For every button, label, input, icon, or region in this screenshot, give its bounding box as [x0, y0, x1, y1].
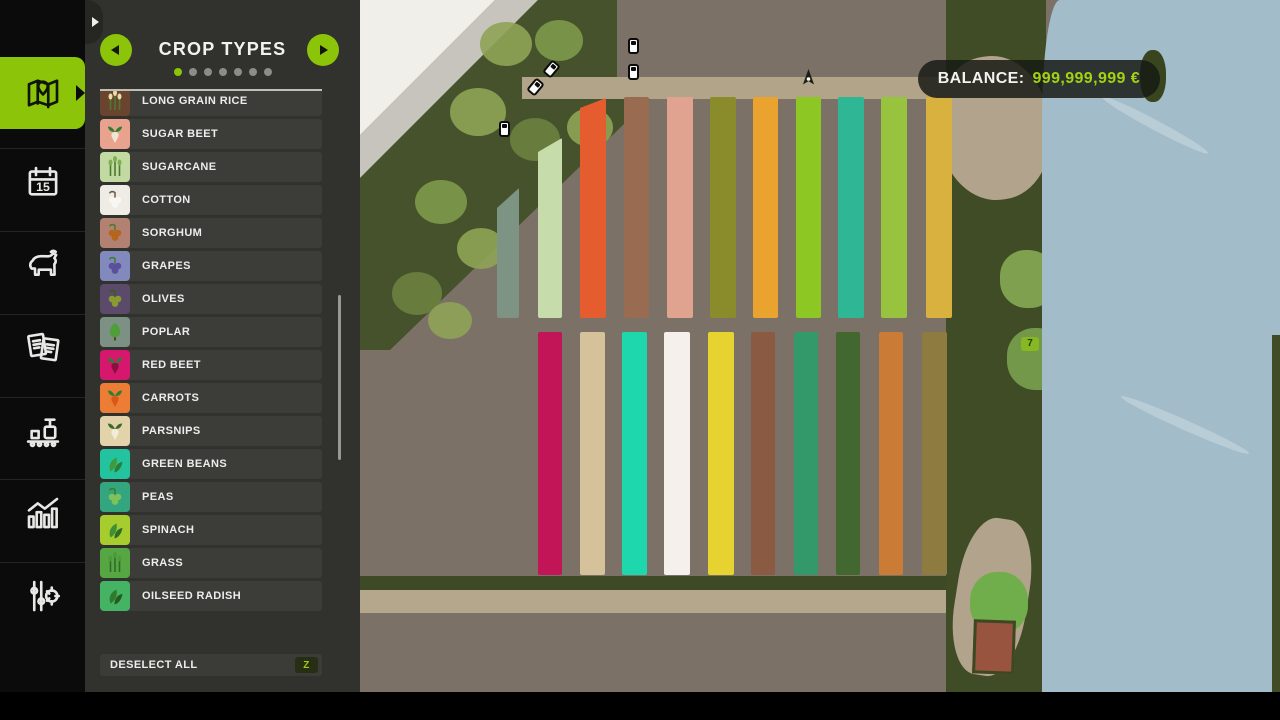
crop-item-label: OILSEED RADISH: [142, 590, 241, 602]
field-strip-top-6[interactable]: [710, 97, 736, 318]
crop-item-label: OLIVES: [142, 293, 185, 305]
deselect-all-label: DESELECT ALL: [110, 659, 295, 671]
crop-item-long-grain-rice[interactable]: LONG GRAIN RICE: [100, 91, 322, 116]
crop-item-label: PARSNIPS: [142, 425, 201, 437]
crop-item-oilseed-radish[interactable]: OILSEED RADISH: [100, 581, 322, 611]
panel-title: CROP TYPES: [85, 39, 360, 60]
crop-item-label: GRAPES: [142, 260, 191, 272]
map-building-roof: [972, 619, 1016, 674]
crop-item-label: POPLAR: [142, 326, 190, 338]
crop-item-label: RED BEET: [142, 359, 201, 371]
crop-item-label: SORGHUM: [142, 227, 202, 239]
crop-item-sorghum[interactable]: SORGHUM: [100, 218, 322, 248]
deselect-all-button[interactable]: DESELECT ALL Z: [100, 654, 322, 676]
grass-icon: [100, 548, 130, 578]
crop-item-grass[interactable]: GRASS: [100, 548, 322, 578]
crop-item-label: GREEN BEANS: [142, 458, 227, 470]
field-strip-top-1[interactable]: [497, 188, 519, 318]
tree-cluster: [535, 20, 583, 61]
long-grain-rice-icon: [100, 91, 130, 116]
panel-collapse-handle[interactable]: [85, 0, 103, 44]
crop-types-panel: CROP TYPES LONG GRAIN RICESUGAR BEETSUGA…: [85, 0, 360, 692]
crop-item-poplar[interactable]: POPLAR: [100, 317, 322, 347]
crop-item-label: COTTON: [142, 194, 191, 206]
peas-icon: [100, 482, 130, 512]
sidebar-item-statistics[interactable]: [0, 479, 85, 545]
crop-list: LONG GRAIN RICESUGAR BEETSUGARCANECOTTON…: [100, 91, 325, 639]
field-strip-top-11[interactable]: [926, 97, 952, 318]
page-dot-3: [204, 68, 212, 76]
crop-item-green-beans[interactable]: GREEN BEANS: [100, 449, 322, 479]
field-strip-bottom-1[interactable]: [538, 332, 562, 575]
production-icon: [22, 410, 64, 452]
field-strip-top-8[interactable]: [796, 97, 821, 318]
crop-item-carrots[interactable]: CARROTS: [100, 383, 322, 413]
crop-item-red-beet[interactable]: RED BEET: [100, 350, 322, 380]
active-item-pointer-icon: [76, 85, 85, 101]
olives-icon: [100, 284, 130, 314]
sidebar-item-calendar[interactable]: 15: [0, 148, 85, 214]
green-beans-icon: [100, 449, 130, 479]
tree-cluster: [428, 302, 472, 339]
field-strip-bottom-4[interactable]: [664, 332, 690, 575]
map-road-top: [522, 77, 954, 99]
crop-item-label: LONG GRAIN RICE: [142, 95, 248, 107]
key-hint-z: Z: [295, 657, 318, 673]
crop-item-label: SUGAR BEET: [142, 128, 218, 140]
field-strip-bottom-9[interactable]: [879, 332, 903, 575]
sidebar: 15: [0, 0, 85, 692]
map-icon: [22, 72, 64, 114]
sorghum-icon: [100, 218, 130, 248]
field-strip-top-4[interactable]: [624, 97, 649, 318]
field-strip-bottom-2[interactable]: [580, 332, 605, 575]
page-dot-7: [264, 68, 272, 76]
sidebar-item-settings[interactable]: [0, 562, 85, 628]
crop-item-peas[interactable]: PEAS: [100, 482, 322, 512]
field-strip-bottom-6[interactable]: [751, 332, 775, 575]
crop-item-parsnips[interactable]: PARSNIPS: [100, 416, 322, 446]
cow-icon: [22, 244, 64, 286]
field-strip-top-7[interactable]: [753, 97, 778, 318]
sidebar-item-map[interactable]: [0, 57, 85, 129]
statistics-icon: [22, 492, 64, 534]
scrollbar-thumb[interactable]: [338, 295, 341, 460]
parsnips-icon: [100, 416, 130, 446]
sidebar-item-animals[interactable]: [0, 231, 85, 297]
field-strip-bottom-3[interactable]: [622, 332, 647, 575]
spinach-icon: [100, 515, 130, 545]
tree-cluster: [480, 22, 532, 66]
field-strip-bottom-7[interactable]: [794, 332, 818, 575]
map-road-bottom: [360, 590, 1040, 613]
red-beet-icon: [100, 350, 130, 380]
page-dot-2: [189, 68, 197, 76]
poplar-icon: [100, 317, 130, 347]
page-dot-1: [174, 68, 182, 76]
vehicle-marker[interactable]: [628, 38, 639, 54]
field-strip-top-9[interactable]: [838, 97, 864, 318]
crop-item-label: SPINACH: [142, 524, 194, 536]
page-dots: [85, 68, 360, 76]
settings-icon: [22, 575, 64, 617]
crop-item-spinach[interactable]: SPINACH: [100, 515, 322, 545]
crop-item-label: PEAS: [142, 491, 174, 503]
field-strip-top-5[interactable]: [667, 97, 693, 318]
field-strip-bottom-5[interactable]: [708, 332, 734, 575]
map-hedge: [360, 576, 1040, 590]
tree-cluster: [415, 180, 467, 224]
sidebar-item-contracts[interactable]: [0, 314, 85, 380]
vehicle-marker[interactable]: [499, 121, 510, 137]
field-strip-top-10[interactable]: [881, 97, 907, 318]
calendar-icon: 15: [22, 161, 64, 203]
crop-item-label: CARROTS: [142, 392, 199, 404]
sidebar-item-production[interactable]: [0, 397, 85, 463]
field-strip-bottom-10[interactable]: [922, 332, 947, 575]
crop-item-sugar-beet[interactable]: SUGAR BEET: [100, 119, 322, 149]
chevron-right-icon: [92, 17, 99, 27]
crop-item-grapes[interactable]: GRAPES: [100, 251, 322, 281]
field-strip-top-2[interactable]: [538, 138, 562, 318]
grapes-icon: [100, 251, 130, 281]
balance-value: 999,999,999 €: [1032, 70, 1140, 88]
contracts-icon: [22, 327, 64, 369]
field-strip-bottom-8[interactable]: [836, 332, 860, 575]
page-dot-4: [219, 68, 227, 76]
balance-label: BALANCE:: [938, 70, 1025, 88]
crop-item-label: GRASS: [142, 557, 183, 569]
sugarcane-icon: [100, 152, 130, 182]
crop-item-cotton[interactable]: COTTON: [100, 185, 322, 215]
page-dot-5: [234, 68, 242, 76]
svg-text:15: 15: [36, 179, 50, 193]
vehicle-marker[interactable]: [628, 64, 639, 80]
crop-item-label: SUGARCANE: [142, 161, 217, 173]
field-strip-top-3[interactable]: [580, 98, 606, 318]
sugar-beet-icon: [100, 119, 130, 149]
map-river: [1042, 0, 1280, 692]
tree-cluster: [450, 88, 506, 136]
crop-item-olives[interactable]: OLIVES: [100, 284, 322, 314]
carrots-icon: [100, 383, 130, 413]
balance-pill: BALANCE: 999,999,999 €: [918, 60, 1160, 98]
cotton-icon: [100, 185, 130, 215]
map-far-bank: [1272, 335, 1280, 692]
field-number-badge[interactable]: 7: [1021, 337, 1039, 351]
page-dot-6: [249, 68, 257, 76]
oilseed-radish-icon: [100, 581, 130, 611]
crop-item-sugarcane[interactable]: SUGARCANE: [100, 152, 322, 182]
